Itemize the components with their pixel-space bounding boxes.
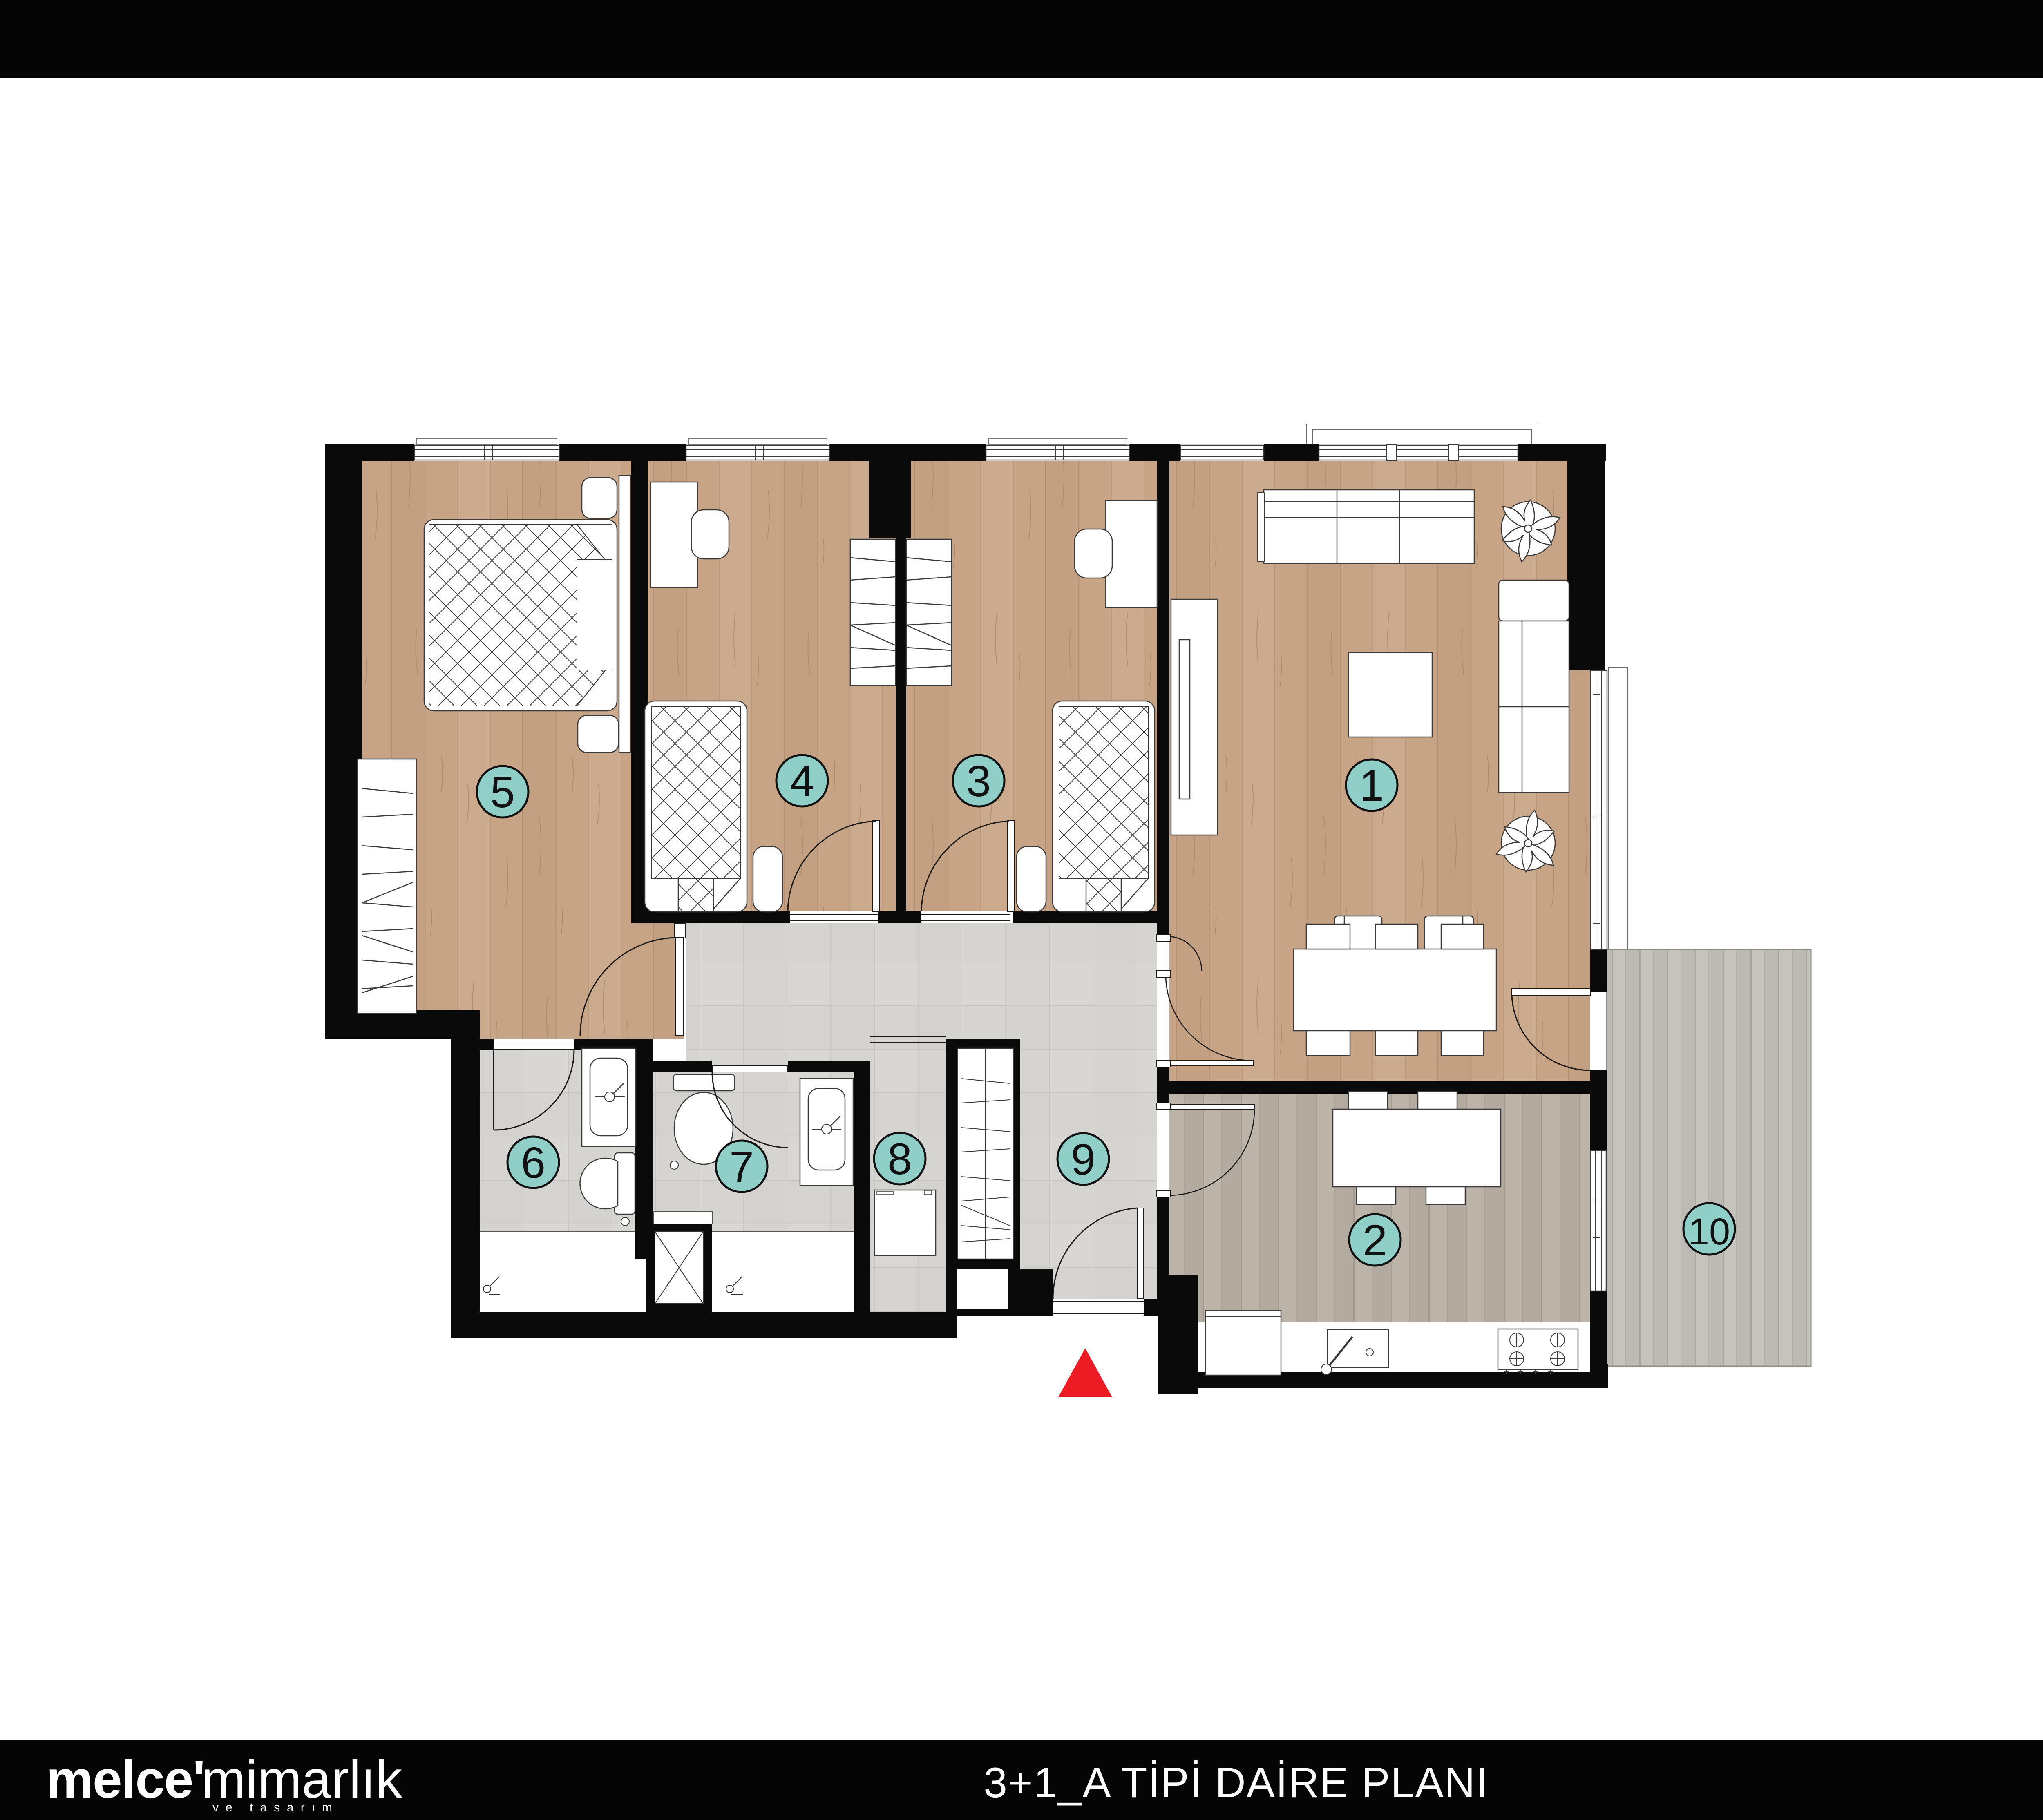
svg-text:3+1_A TİPİ DAİRE PLANI: 3+1_A TİPİ DAİRE PLANI: [984, 1759, 1489, 1807]
svg-text:1: 1: [1359, 761, 1384, 810]
svg-text:melce': melce': [46, 1749, 205, 1809]
svg-text:ve tasarım: ve tasarım: [212, 1801, 339, 1814]
svg-text:7: 7: [729, 1142, 754, 1191]
svg-text:8: 8: [887, 1134, 912, 1184]
svg-text:10: 10: [1688, 1211, 1730, 1253]
svg-text:6: 6: [521, 1138, 545, 1187]
svg-text:5: 5: [490, 767, 515, 817]
svg-text:9: 9: [1071, 1134, 1095, 1184]
svg-text:mimarlık: mimarlık: [201, 1749, 402, 1809]
svg-text:3: 3: [966, 756, 991, 806]
svg-text:4: 4: [790, 756, 814, 806]
svg-text:2: 2: [1363, 1215, 1387, 1265]
